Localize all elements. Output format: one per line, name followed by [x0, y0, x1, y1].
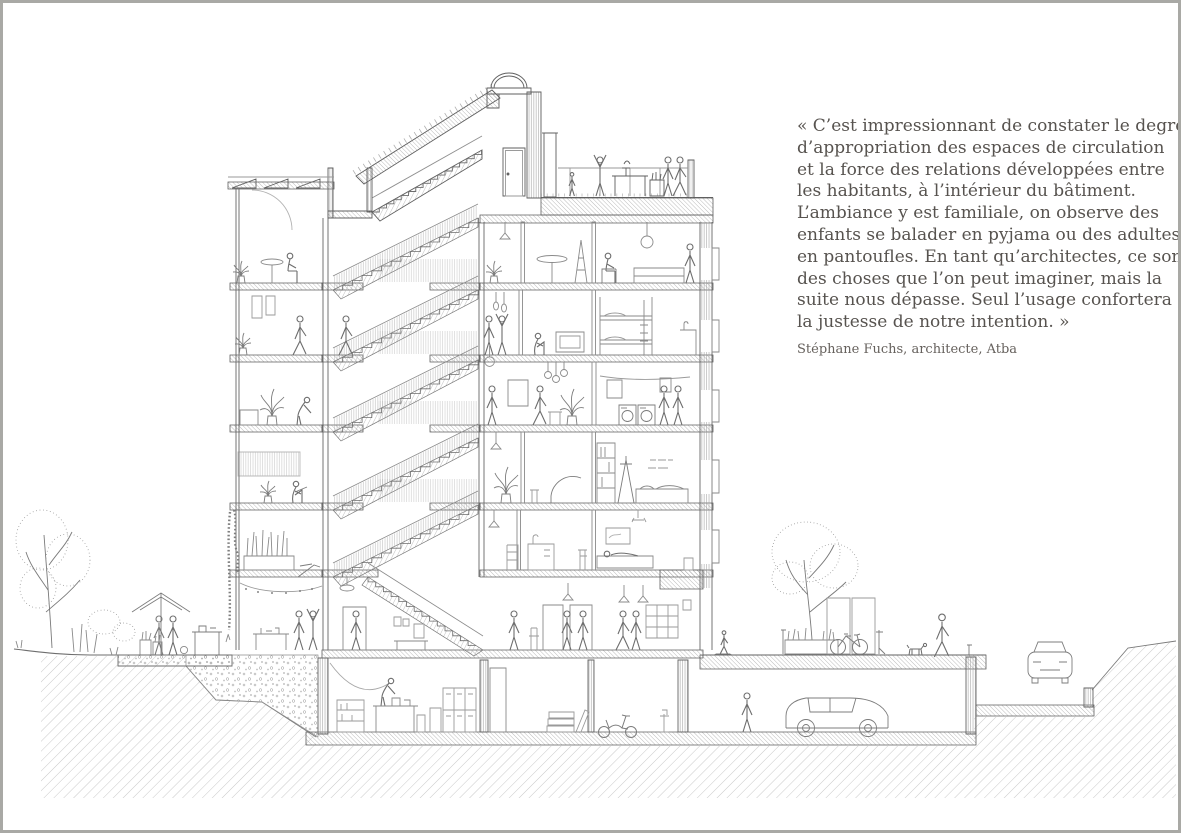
person-hall-3 [562, 611, 572, 650]
person-bay2-2 [496, 314, 508, 355]
quote-line: la justesse de notre intention. » [797, 312, 1167, 334]
bicycle [831, 634, 868, 655]
chimney [544, 133, 556, 197]
ball [180, 646, 187, 653]
partitions [517, 222, 596, 570]
grass-tufts [16, 634, 230, 655]
person-bay1 [685, 244, 695, 283]
workshop-shelf [337, 700, 364, 732]
hall-door-1 [543, 605, 563, 650]
person-hall-5 [616, 611, 629, 650]
cubby-shelves [646, 605, 678, 638]
left-garden [16, 510, 232, 666]
person-bay2-1 [484, 316, 494, 355]
plaza-slab [700, 655, 986, 669]
arriving-car [1028, 642, 1072, 683]
person-terrace-left-1 [294, 611, 304, 650]
skylight-dome [491, 73, 527, 88]
quote-line: suite nous dépasse. Seul l’usage confort… [797, 290, 1167, 312]
lockers [443, 688, 476, 732]
person-carrying [487, 386, 497, 425]
person-table-right [287, 253, 297, 283]
quote-line: L’ambiance y est familiale, on observe d… [797, 203, 1167, 225]
person-terrace-2 [673, 157, 686, 196]
ground-stair-flight [362, 563, 483, 656]
roof-terrace-slab [541, 198, 713, 215]
person-doorway [351, 611, 361, 650]
quote-line: enfants se balader en pyjama ou des adul… [797, 225, 1167, 247]
quote-attribution: Stéphane Fuchs, architecte, Atba [797, 341, 1167, 358]
dog [907, 643, 927, 655]
person-guitar [293, 481, 302, 503]
person-parking [742, 693, 752, 732]
person-garden [168, 616, 178, 655]
quote-line: des choses que l’on peut imaginer, mais … [797, 269, 1167, 291]
sloped-stair-roof [356, 90, 500, 184]
driveway-slab [976, 705, 1094, 716]
right-facade [700, 222, 719, 650]
leftwing-terrace [229, 512, 322, 650]
person-hall-4 [578, 611, 588, 650]
bay2 [484, 292, 696, 355]
roof-door [503, 148, 525, 196]
bed-bay5 [597, 551, 653, 568]
person-workbench [381, 678, 395, 706]
person-laundry-2 [673, 386, 683, 425]
quote-block: « C’est impressionnant de constater le d… [797, 116, 1167, 358]
basement-floor-slab [306, 732, 976, 745]
person-balcony-walk [293, 316, 306, 355]
quote-line: et la force des relations développées en… [797, 160, 1167, 182]
basement-door [490, 668, 506, 732]
tower-wall [527, 92, 541, 198]
person-terrace-1 [663, 157, 673, 196]
quote-line: en pantoufles. En tant qu’architectes, c… [797, 247, 1167, 269]
stairwell-right-wall [479, 222, 484, 577]
ground-slab [322, 650, 703, 658]
bay1 [486, 222, 695, 283]
parasol [132, 593, 190, 655]
person-armchair [605, 253, 615, 283]
leftwing-wall [236, 189, 239, 650]
bookshelf [597, 443, 615, 503]
terrace-slab-left [118, 655, 232, 666]
person-sitting-floor [535, 333, 544, 355]
roof-flight [372, 136, 482, 221]
mattress-stack [547, 710, 589, 732]
person-table-left [0, 536, 1, 566]
leftwing-bay-2 [235, 296, 306, 355]
person-dancing [533, 386, 546, 425]
garden-bushes [72, 610, 135, 653]
garden-tree [16, 510, 90, 648]
person-walking-dog [934, 614, 948, 657]
person-terrace-left-2 [307, 609, 319, 650]
child-on-scooter [720, 631, 728, 655]
quote-line: « C’est impressionnant de constater le d… [797, 116, 1167, 138]
tower-pier [487, 94, 499, 108]
garden-table [192, 626, 222, 655]
parked-car [786, 698, 888, 737]
french-balconies [712, 248, 719, 563]
bed-bay4 [636, 486, 688, 503]
street-tree [772, 522, 858, 640]
quote-line: d’appropriation des espaces de circulati… [797, 138, 1167, 160]
bunk-bed [600, 297, 652, 355]
child-garden [154, 616, 164, 655]
person-hall-1 [509, 611, 519, 650]
ground-surface-left [14, 649, 232, 655]
leftwing-bay-3 [240, 389, 311, 425]
person-hall-6 [631, 611, 641, 650]
top-ceiling-slab [480, 215, 713, 223]
terrace-parapet [688, 160, 694, 198]
quote-line: les habitants, à l’intérieur du bâtiment… [797, 181, 1167, 203]
person-watering [297, 397, 311, 425]
